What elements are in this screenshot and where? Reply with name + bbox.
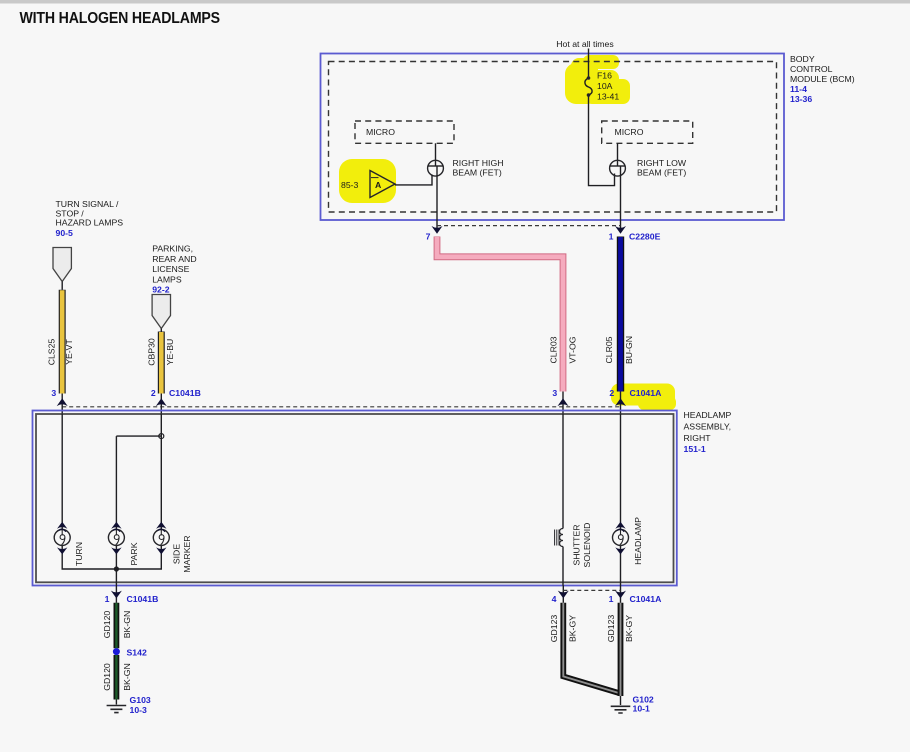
svg-text:10A: 10A — [597, 81, 613, 91]
svg-text:CBP30: CBP30 — [147, 338, 157, 366]
svg-text:151-1: 151-1 — [684, 444, 706, 454]
svg-text:GD120: GD120 — [102, 611, 112, 639]
svg-text:C1041B: C1041B — [127, 594, 159, 604]
svg-text:C2280E: C2280E — [629, 232, 661, 242]
svg-text:BK-GN: BK-GN — [122, 663, 132, 691]
svg-text:BEAM (FET): BEAM (FET) — [637, 168, 686, 178]
svg-text:BEAM (FET): BEAM (FET) — [453, 168, 502, 178]
svg-text:2: 2 — [151, 388, 156, 398]
svg-text:CLR05: CLR05 — [604, 336, 614, 363]
svg-text:RIGHT LOW: RIGHT LOW — [637, 158, 687, 168]
svg-text:4: 4 — [552, 594, 557, 604]
svg-text:MARKER: MARKER — [182, 535, 192, 572]
svg-text:SHUTTER: SHUTTER — [572, 524, 582, 565]
svg-text:RIGHT: RIGHT — [684, 433, 712, 443]
svg-text:1: 1 — [609, 232, 614, 242]
svg-text:HEADLAMP: HEADLAMP — [684, 410, 732, 420]
svg-text:3: 3 — [552, 388, 557, 398]
svg-text:90-5: 90-5 — [56, 228, 74, 238]
svg-text:REAR AND: REAR AND — [152, 254, 196, 264]
svg-text:SIDE: SIDE — [172, 544, 182, 564]
svg-text:VT-OG: VT-OG — [567, 336, 577, 363]
svg-text:85-3: 85-3 — [341, 180, 359, 190]
svg-text:BU-GN: BU-GN — [624, 336, 634, 364]
svg-text:S142: S142 — [127, 647, 147, 657]
svg-text:YE-VT: YE-VT — [64, 339, 74, 365]
svg-text:MODULE (BCM): MODULE (BCM) — [790, 74, 855, 84]
svg-text:11-4: 11-4 — [790, 84, 807, 94]
svg-text:TURN: TURN — [74, 542, 84, 566]
svg-text:MICRO: MICRO — [366, 127, 395, 137]
svg-text:WITH HALOGEN HEADLAMPS: WITH HALOGEN HEADLAMPS — [20, 9, 221, 27]
svg-text:HAZARD LAMPS: HAZARD LAMPS — [56, 218, 124, 228]
svg-text:10-1: 10-1 — [633, 704, 651, 714]
svg-text:SOLENOID: SOLENOID — [582, 523, 592, 568]
svg-text:PARKING,: PARKING, — [152, 244, 193, 254]
svg-text:92-2: 92-2 — [152, 284, 170, 294]
svg-text:MICRO: MICRO — [615, 127, 644, 137]
svg-text:3: 3 — [51, 388, 56, 398]
svg-text:LICENSE: LICENSE — [152, 264, 189, 274]
svg-text:BK-GY: BK-GY — [567, 615, 577, 642]
svg-text:2: 2 — [609, 388, 614, 398]
svg-text:GD120: GD120 — [102, 663, 112, 691]
svg-text:Hot at all times: Hot at all times — [556, 39, 614, 49]
svg-text:PARK: PARK — [129, 542, 139, 565]
svg-text:ASSEMBLY,: ASSEMBLY, — [684, 422, 731, 432]
svg-text:RIGHT HIGH: RIGHT HIGH — [453, 158, 504, 168]
svg-text:BK-GY: BK-GY — [624, 615, 634, 642]
svg-text:LAMPS: LAMPS — [152, 274, 182, 284]
svg-text:CONTROL: CONTROL — [790, 64, 833, 74]
svg-text:F16: F16 — [597, 71, 612, 81]
svg-text:BK-GN: BK-GN — [122, 611, 132, 639]
svg-text:13-41: 13-41 — [597, 91, 619, 101]
svg-text:YE-BU: YE-BU — [165, 339, 175, 366]
svg-text:1: 1 — [105, 594, 110, 604]
svg-text:C1041B: C1041B — [169, 388, 201, 398]
svg-text:CLS25: CLS25 — [47, 339, 57, 366]
svg-text:10-3: 10-3 — [130, 705, 148, 715]
svg-text:7: 7 — [426, 232, 431, 242]
svg-text:1: 1 — [609, 594, 614, 604]
svg-text:A: A — [375, 180, 382, 190]
svg-text:GD123: GD123 — [549, 615, 559, 643]
svg-text:GD123: GD123 — [606, 615, 616, 643]
svg-text:CLR03: CLR03 — [549, 336, 559, 363]
svg-text:G103: G103 — [130, 695, 151, 705]
svg-text:C1041A: C1041A — [630, 594, 663, 604]
svg-text:13-36: 13-36 — [790, 94, 812, 104]
svg-text:HEADLAMP: HEADLAMP — [633, 517, 643, 565]
svg-text:C1041A: C1041A — [630, 388, 663, 398]
svg-text:BODY: BODY — [790, 54, 815, 64]
